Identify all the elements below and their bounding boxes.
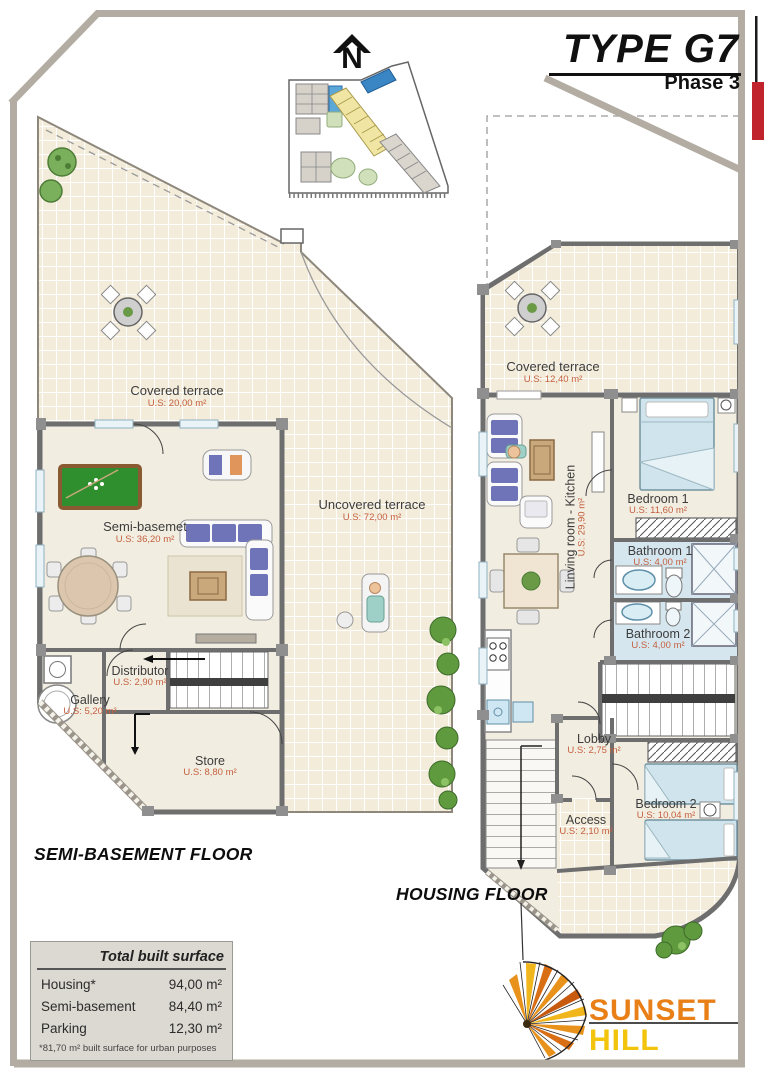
logo-text-hill: HILL — [589, 1024, 660, 1058]
stairs — [170, 652, 268, 708]
room-label-bathroom1: Bathroom 1 U.S: 4,00 m² — [628, 544, 693, 569]
room-area: U.S: 8,80 m² — [183, 768, 236, 779]
row-label: Parking — [41, 1021, 87, 1036]
stairs-interior — [602, 664, 735, 736]
room-label-living-kitchen: Linving room - Kitchen U.S: 29,90 m² — [564, 465, 589, 589]
room-name: Bedroom 1 — [627, 492, 688, 506]
room-area: U.S: 36,20 m² — [103, 535, 187, 546]
room-label-access: Access U.S: 2,10 m² — [559, 813, 612, 838]
pool-table — [60, 466, 140, 508]
row-label: Semi-basement — [41, 999, 136, 1014]
row-value: 12,30 m² — [169, 1021, 222, 1036]
room-name: Linving room - Kitchen — [564, 465, 578, 589]
room-label-semi-basement: Semi-basemet U.S: 36,20 m² — [103, 520, 187, 545]
housing-floor-title: HOUSING FLOOR — [396, 884, 548, 905]
room-area: U.S: 12,40 m² — [506, 375, 599, 386]
table-row: Housing* 94,00 m² — [31, 977, 232, 992]
row-label: Housing* — [41, 977, 96, 992]
tv-unit — [196, 634, 256, 643]
room-area: U.S: 5,20 m² — [63, 707, 116, 718]
room-label-bedroom1: Bedroom 1 U.S: 11,60 m² — [627, 492, 688, 517]
room-area: U.S: 11,60 m² — [627, 506, 688, 517]
north-label: N — [341, 42, 363, 76]
room-name: Access — [559, 813, 612, 827]
terrace-door — [497, 391, 541, 399]
room-name: Bathroom 2 — [626, 627, 691, 641]
room-area: U.S: 2,10 m² — [559, 827, 612, 838]
tv-unit-2 — [592, 432, 604, 492]
semi-basement-floor-title: SEMI-BASEMENT FLOOR — [34, 844, 253, 865]
site-plan — [289, 34, 448, 196]
leader-line — [521, 903, 523, 960]
phase-label: Phase 3 — [664, 72, 740, 95]
surface-table-rule — [37, 968, 226, 970]
room-area: U.S: 20,00 m² — [130, 399, 223, 410]
row-value: 94,00 m² — [169, 977, 222, 992]
room-label-covered-terrace-h: Covered terrace U.S: 12,40 m² — [506, 360, 599, 385]
room-area: U.S: 2,90 m² — [112, 678, 169, 689]
wardrobe2 — [648, 742, 736, 762]
room-name: Semi-basemet — [103, 520, 187, 535]
room-label-uncovered-terrace: Uncovered terrace U.S: 72,00 m² — [319, 498, 426, 523]
room-name: Store — [183, 754, 236, 768]
plan-sheet: TYPE G7 Phase 3 N Covered terrace U.S: 2… — [0, 0, 764, 1080]
table-row: Semi-basement 84,40 m² — [31, 999, 232, 1014]
room-name: Distributor — [112, 664, 169, 678]
room-label-store: Store U.S: 8,80 m² — [183, 754, 236, 779]
room-label-bedroom2: Bedroom 2 U.S: 10,04 m² — [635, 797, 696, 822]
room-name: Uncovered terrace — [319, 498, 426, 513]
room-area: U.S: 4,00 m² — [626, 641, 691, 652]
surface-table: Total built surface Housing* 94,00 m² Se… — [30, 941, 233, 1061]
room-label-covered-terrace-sb: Covered terrace U.S: 20,00 m² — [130, 384, 223, 409]
wardrobe1 — [636, 518, 736, 538]
room-name: Gallery — [63, 693, 116, 707]
surface-table-footnote: *81,70 m² built surface for urban purpos… — [31, 1043, 232, 1054]
row-value: 84,40 m² — [169, 999, 222, 1014]
logo-text-sunset: SUNSET — [589, 994, 717, 1028]
room-label-gallery: Gallery U.S: 5,20 m² — [63, 693, 116, 718]
room-area: U.S: 2,75 m² — [567, 746, 620, 757]
room-label-lobby: Lobby U.S: 2,75 m² — [567, 732, 620, 757]
surface-table-title: Total built surface — [31, 949, 232, 965]
room-label-distributor: Distributor U.S: 2,90 m² — [112, 664, 169, 689]
table-row: Parking 12,30 m² — [31, 1021, 232, 1036]
lounge-chair — [203, 450, 251, 480]
room-area: U.S: 29,90 m² — [578, 465, 589, 589]
room-name: Covered terrace — [130, 384, 223, 399]
room-area: U.S: 4,00 m² — [628, 558, 693, 569]
room-area: U.S: 10,04 m² — [635, 811, 696, 822]
edge-tick — [755, 16, 758, 82]
room-label-bathroom2: Bathroom 2 U.S: 4,00 m² — [626, 627, 691, 652]
red-accent-bar — [752, 82, 764, 140]
room-name: Bathroom 1 — [628, 544, 693, 558]
room-area: U.S: 72,00 m² — [319, 513, 426, 524]
room-name: Bedroom 2 — [635, 797, 696, 811]
room-name: Covered terrace — [506, 360, 599, 375]
page-title: TYPE G7 — [549, 27, 741, 76]
room-name: Lobby — [567, 732, 620, 746]
